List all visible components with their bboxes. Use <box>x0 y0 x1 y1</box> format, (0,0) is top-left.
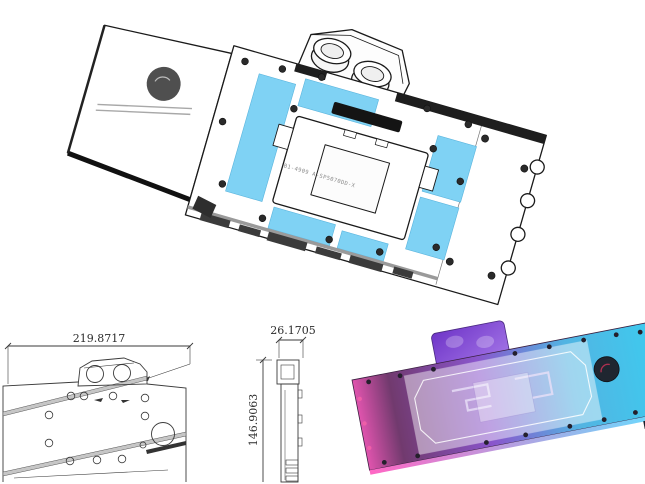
rgb-render-svg <box>332 318 645 484</box>
main-waterblock-render: B1-4909 A-SP5070DD-X <box>0 0 645 330</box>
rgb-acrylic-center <box>404 340 602 454</box>
angled-rail-lower <box>3 432 186 476</box>
flow-arrows <box>94 398 130 403</box>
front-port <box>114 365 131 382</box>
logo-hole <box>152 423 175 446</box>
thickness-dimension: 26.1705 <box>270 324 316 358</box>
front-port <box>87 366 104 383</box>
height-dimension: 146.9063 <box>247 357 272 482</box>
dimension-drawing-svg: 219.8717 <box>0 320 332 484</box>
width-dimension-label: 219.8717 <box>73 332 126 345</box>
front-view <box>3 358 186 482</box>
rgb-waterblock-render <box>332 318 645 484</box>
height-dimension-label: 146.9063 <box>247 394 260 447</box>
main-render-svg: B1-4909 A-SP5070DD-X <box>0 0 645 330</box>
thickness-dimension-label: 26.1705 <box>270 324 316 337</box>
dimension-drawing: 219.8717 <box>0 320 332 484</box>
width-dimension: 219.8717 <box>5 332 193 384</box>
side-view <box>277 360 302 482</box>
product-image-composite: B1-4909 A-SP5070DD-X <box>0 0 645 484</box>
